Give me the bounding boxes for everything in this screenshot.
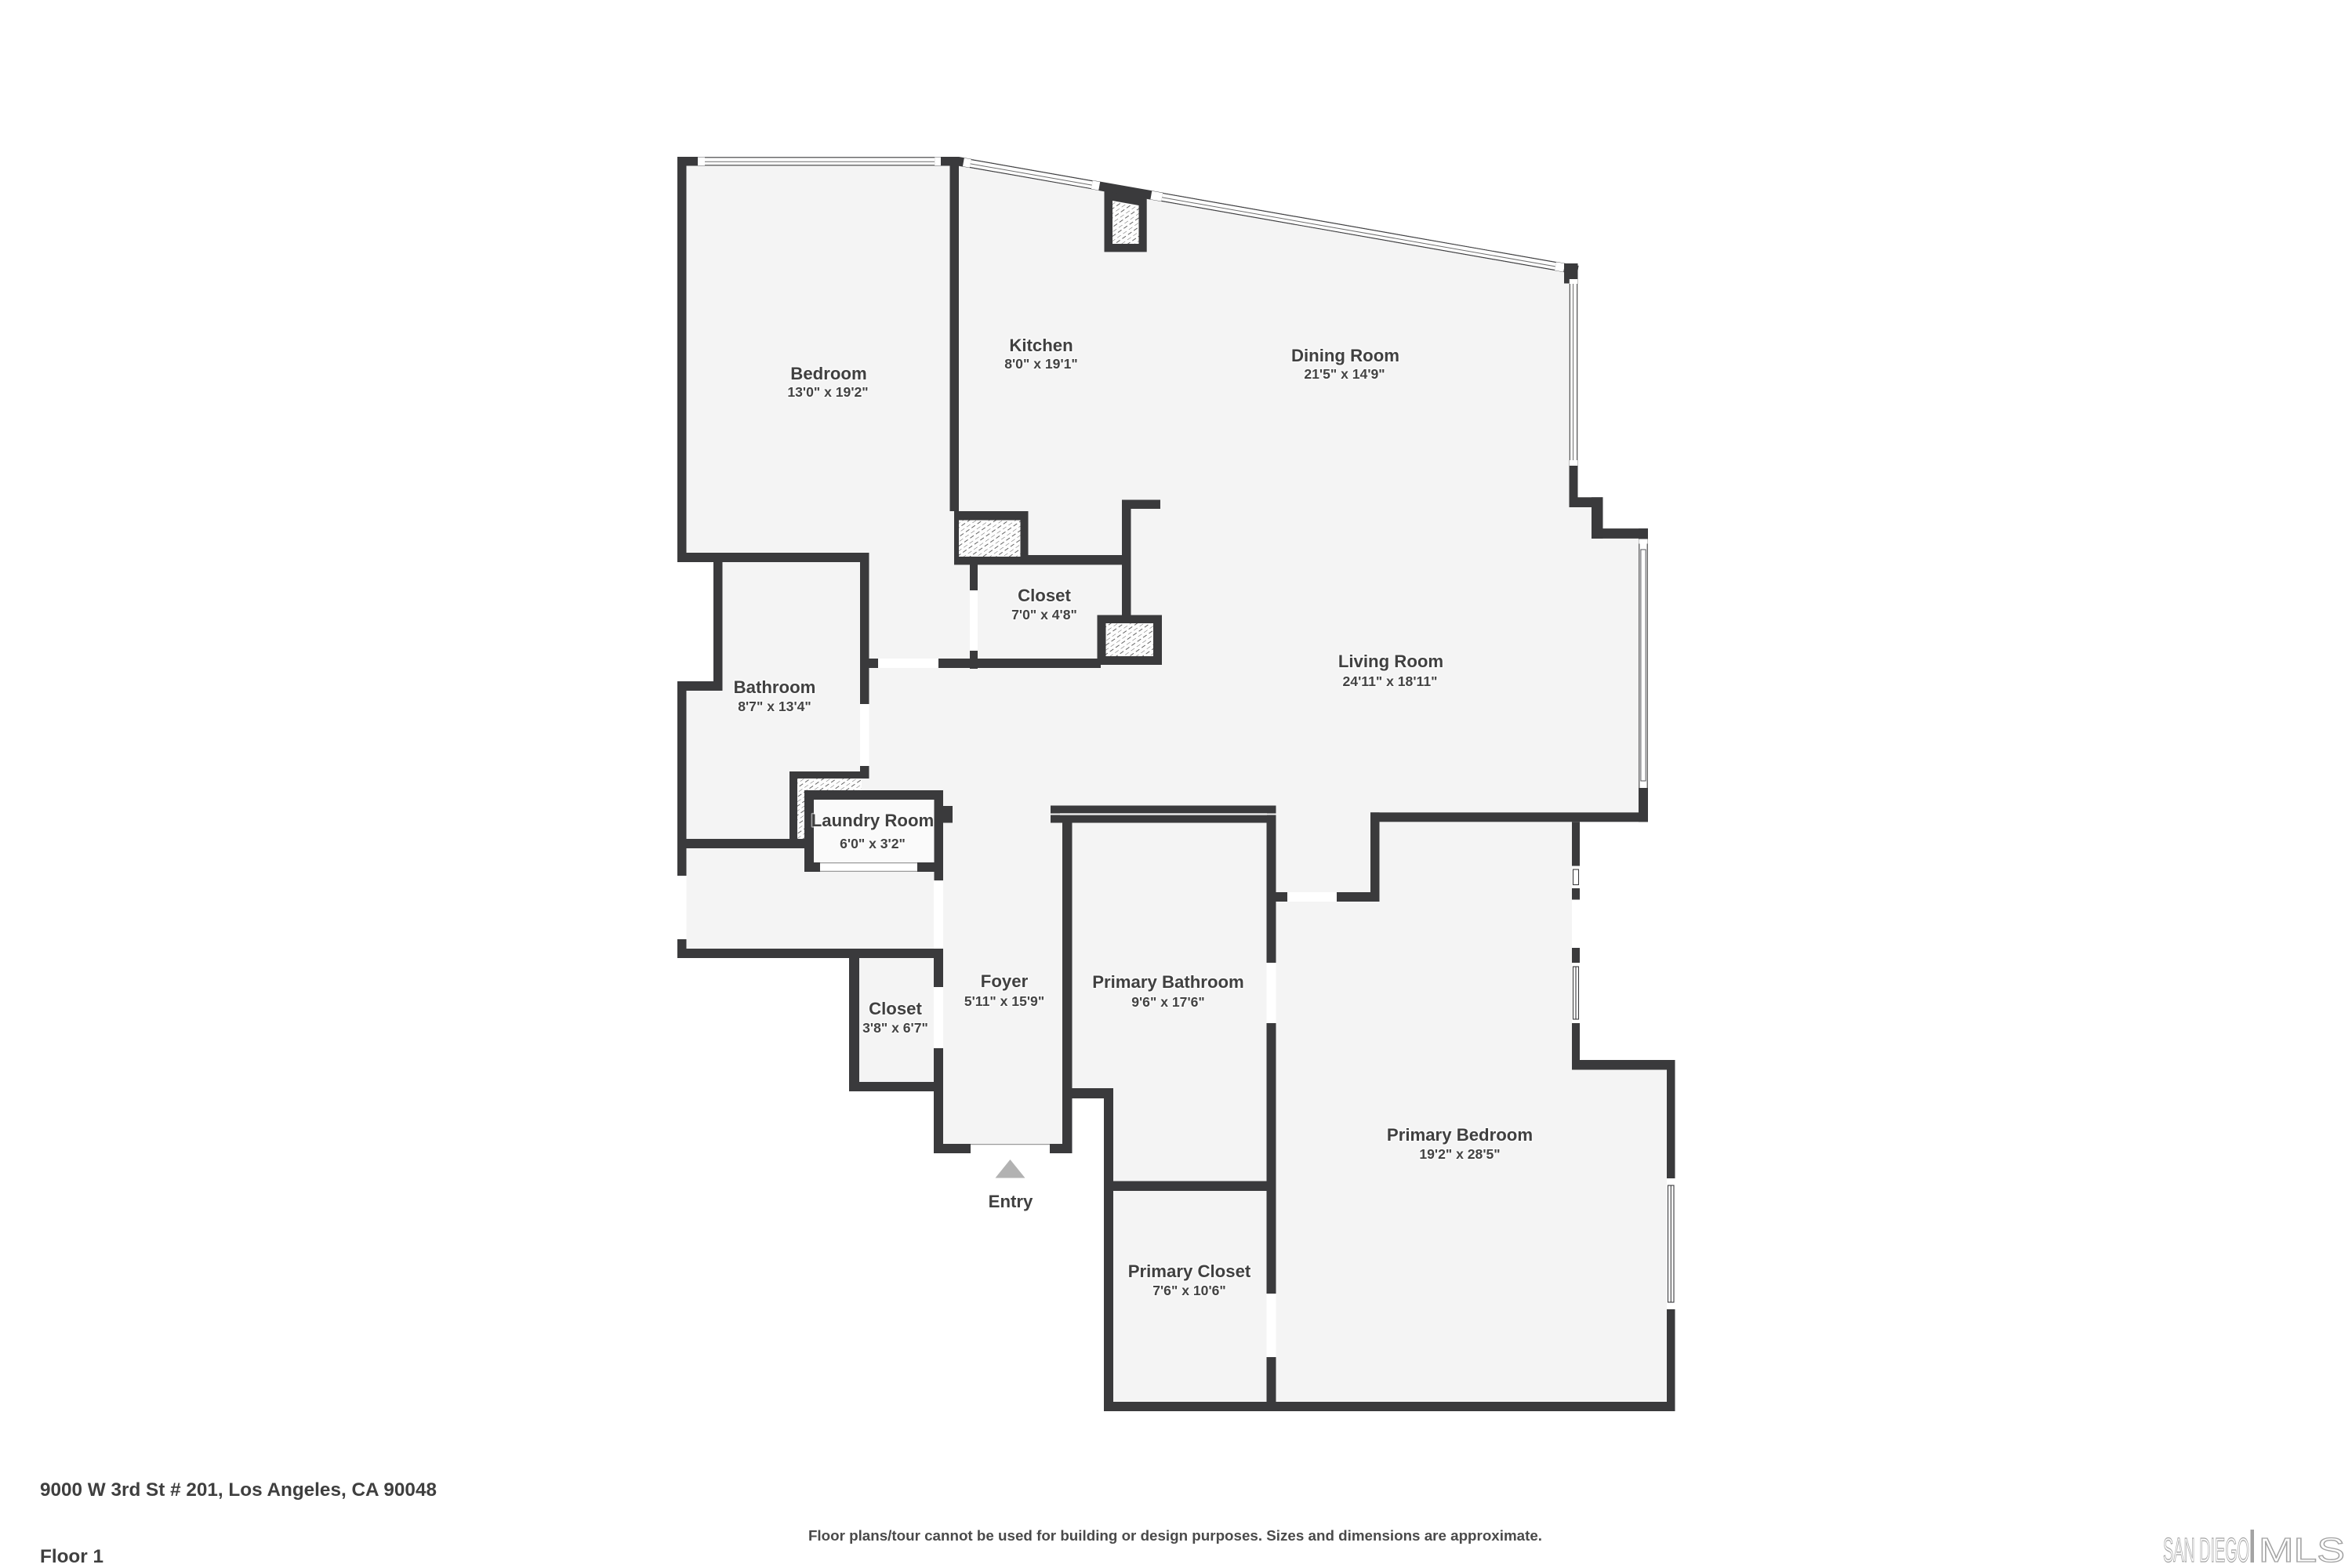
svg-text:19'2" x 28'5": 19'2" x 28'5"	[1419, 1146, 1500, 1162]
svg-text:Primary Closet: Primary Closet	[1128, 1261, 1251, 1281]
svg-text:Floor 1: Floor 1	[40, 1546, 103, 1567]
svg-text:6'0" x 3'2": 6'0" x 3'2"	[840, 836, 906, 851]
svg-text:Bathroom: Bathroom	[734, 677, 816, 697]
svg-text:8'7" x 13'4": 8'7" x 13'4"	[738, 699, 811, 714]
svg-text:Closet: Closet	[869, 999, 922, 1018]
svg-text:8'0" x 19'1": 8'0" x 19'1"	[1004, 356, 1078, 372]
svg-text:5'11" x 15'9": 5'11" x 15'9"	[964, 993, 1044, 1009]
svg-text:Entry: Entry	[989, 1192, 1033, 1211]
svg-text:SAN DIEGO: SAN DIEGO	[2163, 1531, 2249, 1568]
svg-text:7'6" x 10'6": 7'6" x 10'6"	[1152, 1283, 1226, 1298]
svg-text:9000 W 3rd St # 201, Los Angel: 9000 W 3rd St # 201, Los Angeles, CA 900…	[40, 1479, 437, 1501]
svg-text:9'6" x 17'6": 9'6" x 17'6"	[1131, 994, 1205, 1010]
svg-text:7'0" x 4'8": 7'0" x 4'8"	[1011, 607, 1077, 622]
svg-text:3'8" x 6'7": 3'8" x 6'7"	[862, 1020, 928, 1036]
svg-text:Primary Bathroom: Primary Bathroom	[1092, 972, 1244, 992]
svg-text:Laundry Room: Laundry Room	[811, 811, 935, 830]
svg-text:Dining Room: Dining Room	[1291, 346, 1399, 365]
svg-text:Floor plans/tour cannot be use: Floor plans/tour cannot be used for buil…	[808, 1527, 1542, 1544]
svg-text:Bedroom: Bedroom	[790, 364, 866, 383]
svg-text:Kitchen: Kitchen	[1009, 336, 1073, 355]
svg-text:MLS: MLS	[2259, 1531, 2345, 1568]
svg-text:13'0" x 19'2": 13'0" x 19'2"	[787, 384, 868, 400]
svg-text:Primary Bedroom: Primary Bedroom	[1387, 1125, 1533, 1145]
svg-text:Living Room: Living Room	[1338, 652, 1443, 671]
svg-text:21'5" x 14'9": 21'5" x 14'9"	[1304, 366, 1385, 382]
svg-text:24'11" x 18'11": 24'11" x 18'11"	[1343, 673, 1438, 689]
svg-text:Foyer: Foyer	[981, 971, 1029, 991]
svg-text:Closet: Closet	[1018, 586, 1071, 605]
